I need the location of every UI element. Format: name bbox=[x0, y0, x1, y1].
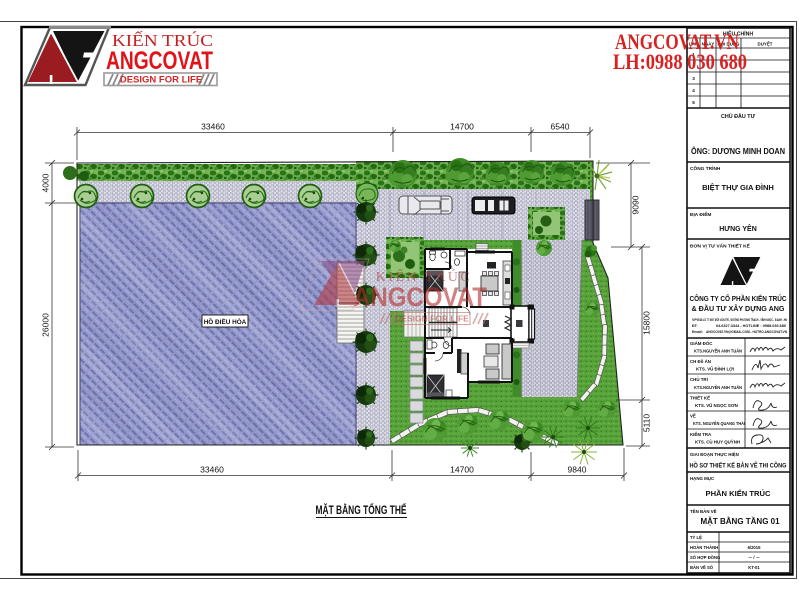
svg-text:Email:: Email: bbox=[692, 330, 703, 334]
svg-text:5110: 5110 bbox=[642, 414, 652, 433]
svg-text:GIÁM ĐỐC: GIÁM ĐỐC bbox=[690, 341, 713, 346]
svg-text:DESIGN FOR LIFE: DESIGN FOR LIFE bbox=[395, 314, 469, 324]
svg-text:TÊN BẢN VẼ: TÊN BẢN VẼ bbox=[690, 509, 717, 514]
svg-text:KTS. VŨ NGỌC SƠN: KTS. VŨ NGỌC SƠN bbox=[695, 403, 738, 408]
svg-text:THIẾT KẾ: THIẾT KẾ bbox=[690, 396, 710, 401]
svg-text:& ĐẦU TƯ XÂY DỰNG ANG: & ĐẦU TƯ XÂY DỰNG ANG bbox=[692, 303, 785, 313]
svg-text:14700: 14700 bbox=[450, 122, 474, 132]
svg-text:15800: 15800 bbox=[642, 311, 652, 335]
svg-text:MẶT BẰNG TẦNG 01: MẶT BẰNG TẦNG 01 bbox=[700, 516, 780, 526]
svg-text:6540: 6540 bbox=[551, 122, 570, 132]
svg-text:VẼ: VẼ bbox=[690, 414, 696, 419]
svg-text:33460: 33460 bbox=[201, 122, 225, 132]
svg-text:KTS. NGUYỄN QUANG THÁI: KTS. NGUYỄN QUANG THÁI bbox=[693, 421, 745, 426]
svg-text:KT-01: KT-01 bbox=[748, 565, 760, 570]
svg-text:GIAI ĐOẠN THỰC HIỆN: GIAI ĐOẠN THỰC HIỆN bbox=[690, 452, 739, 457]
svg-text:DESIGN FOR LIFE: DESIGN FOR LIFE bbox=[120, 75, 202, 86]
svg-text:04.6327.3344 - HOTLINE : 0988.: 04.6327.3344 - HOTLINE : 0988.030.680 bbox=[716, 324, 786, 328]
svg-text:ANGCOVAT: ANGCOVAT bbox=[353, 282, 487, 312]
svg-text:ÔNG: DƯƠNG MINH DOAN: ÔNG: DƯƠNG MINH DOAN bbox=[691, 147, 785, 156]
svg-text:HOÀN THÀNH: HOÀN THÀNH bbox=[690, 545, 718, 550]
svg-text:KTS.NGUYỄN ANH TUẤN: KTS.NGUYỄN ANH TUẤN bbox=[694, 349, 742, 354]
svg-text:5: 5 bbox=[692, 100, 695, 105]
svg-text:－ / －: － / － bbox=[748, 555, 760, 560]
svg-text:ANGCOVAT.VN@GMAIL.COM - HOTRO.: ANGCOVAT.VN@GMAIL.COM - HOTRO.ANGCOVAT.V… bbox=[706, 330, 787, 334]
svg-text:VPGD:: VPGD: bbox=[692, 318, 703, 322]
svg-text:PHẦN KIẾN TRÚC: PHẦN KIẾN TRÚC bbox=[706, 488, 771, 498]
svg-text:KTS.NGUYỄN ANH TUẤN: KTS.NGUYỄN ANH TUẤN bbox=[694, 385, 742, 390]
svg-text:HẠNG MỤC: HẠNG MỤC bbox=[690, 476, 715, 481]
svg-text:CH Đồ ÁN: CH Đồ ÁN bbox=[690, 359, 711, 364]
svg-text:CHỦ ĐẦU TƯ: CHỦ ĐẦU TƯ bbox=[721, 113, 756, 120]
svg-text:DUYỆT: DUYỆT bbox=[758, 42, 773, 47]
svg-text:6/2015: 6/2015 bbox=[748, 545, 761, 550]
svg-text:HƯNG YÊN: HƯNG YÊN bbox=[719, 224, 757, 233]
svg-text:MẶT BẰNG TỔNG THỂ: MẶT BẰNG TỔNG THỂ bbox=[316, 504, 407, 517]
svg-text:BIỆT THỰ GIA ĐÌNH: BIỆT THỰ GIA ĐÌNH bbox=[702, 183, 774, 192]
svg-text:9840: 9840 bbox=[568, 465, 587, 475]
svg-text:KIỂM TRA: KIỂM TRA bbox=[690, 432, 712, 437]
svg-text:ĐỊA ĐIỂM: ĐỊA ĐIỂM bbox=[690, 211, 711, 218]
svg-text:TỶ LỆ: TỶ LỆ bbox=[690, 535, 702, 540]
svg-text:SỐ HỢP ĐỒNG: SỐ HỢP ĐỒNG bbox=[690, 555, 720, 560]
svg-text:14700: 14700 bbox=[450, 465, 474, 475]
svg-text:BẢN VẼ SỐ: BẢN VẼ SỐ bbox=[690, 565, 714, 570]
svg-text:26000: 26000 bbox=[41, 313, 51, 337]
svg-text:KTS. VŨ ĐÌNH LỢI: KTS. VŨ ĐÌNH LỢI bbox=[696, 367, 734, 372]
svg-text:ĐƠN VỊ TƯ VẤN THIẾT KẾ: ĐƠN VỊ TƯ VẤN THIẾT KẾ bbox=[690, 243, 751, 250]
svg-text:LH:0988 030 680: LH:0988 030 680 bbox=[613, 49, 747, 74]
svg-text:KTS. CÙ HUY QUỲNH: KTS. CÙ HUY QUỲNH bbox=[695, 440, 740, 445]
svg-text:4: 4 bbox=[692, 88, 695, 93]
svg-text:33460: 33460 bbox=[200, 465, 224, 475]
svg-text:CÔNG TY CỔ PHẦN KIẾN TRÚC: CÔNG TY CỔ PHẦN KIẾN TRÚC bbox=[690, 293, 788, 303]
svg-text:CHỦ TRÌ: CHỦ TRÌ bbox=[690, 377, 708, 382]
svg-text:ĐT:: ĐT: bbox=[692, 324, 698, 328]
svg-text:3: 3 bbox=[692, 76, 695, 81]
svg-text:ANGCOVAT: ANGCOVAT bbox=[106, 47, 213, 75]
svg-text:LÔ 77 KĐT MỚI VÂN TRÌ - ĐƯỜNG: LÔ 77 KĐT MỚI VÂN TRÌ - ĐƯỜNG PHƯƠNG TRẠ… bbox=[703, 317, 787, 322]
svg-text:9090: 9090 bbox=[631, 195, 641, 214]
svg-text:4000: 4000 bbox=[41, 173, 51, 192]
